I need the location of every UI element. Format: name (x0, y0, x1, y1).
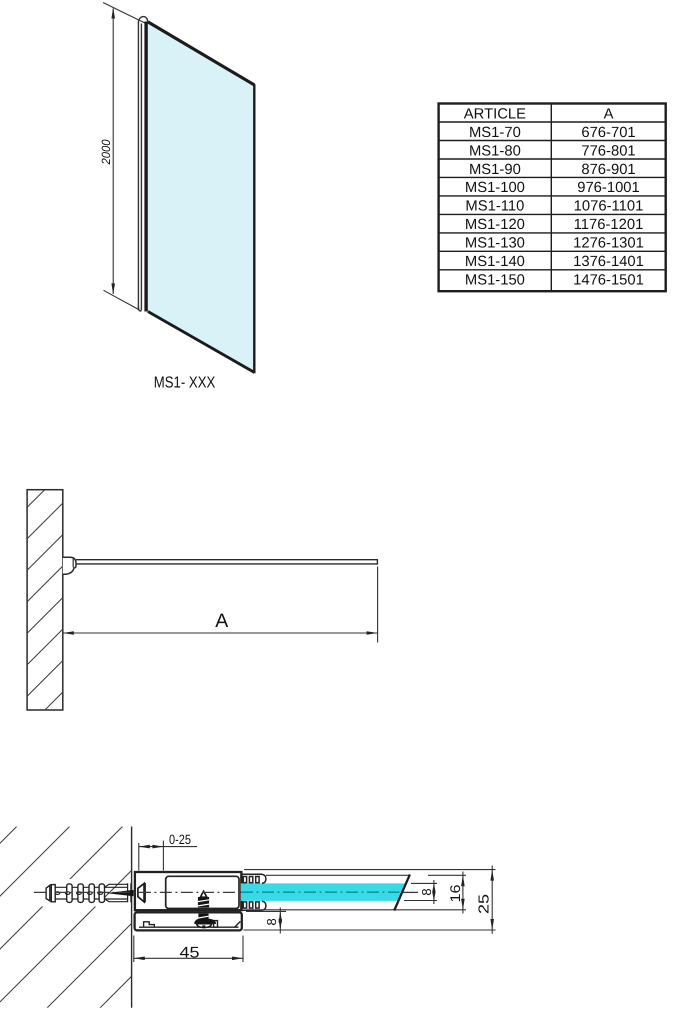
svg-text:MS1-80: MS1-80 (469, 143, 521, 159)
svg-text:16: 16 (447, 884, 463, 902)
svg-text:876-901: 876-901 (581, 162, 635, 178)
svg-text:MS1- XXX: MS1- XXX (154, 375, 216, 392)
svg-text:776-801: 776-801 (581, 143, 635, 159)
svg-text:1176-1201: 1176-1201 (574, 217, 644, 233)
svg-text:1076-1101: 1076-1101 (574, 199, 644, 215)
svg-text:MS1-100: MS1-100 (465, 180, 525, 196)
svg-text:25: 25 (477, 894, 493, 914)
svg-text:8: 8 (419, 888, 434, 895)
svg-text:MS1-140: MS1-140 (465, 254, 525, 270)
svg-text:A: A (604, 106, 614, 122)
svg-text:0-25: 0-25 (169, 832, 191, 847)
svg-text:8: 8 (264, 918, 279, 925)
svg-text:1276-1301: 1276-1301 (573, 236, 644, 252)
svg-text:MS1-130: MS1-130 (465, 236, 525, 252)
svg-text:45: 45 (180, 944, 200, 961)
svg-text:1376-1401: 1376-1401 (573, 254, 644, 270)
svg-text:MS1-150: MS1-150 (465, 273, 525, 289)
svg-text:MS1-110: MS1-110 (465, 199, 524, 215)
svg-text:A: A (215, 610, 228, 632)
svg-text:1476-1501: 1476-1501 (573, 273, 644, 289)
svg-text:MS1-120: MS1-120 (465, 217, 525, 233)
svg-text:676-701: 676-701 (581, 125, 635, 141)
svg-text:ARTICLE: ARTICLE (464, 106, 526, 122)
svg-text:976-1001: 976-1001 (577, 180, 640, 196)
svg-text:MS1-90: MS1-90 (469, 162, 521, 178)
svg-text:MS1-70: MS1-70 (469, 125, 521, 141)
svg-text:2000: 2000 (99, 139, 113, 165)
